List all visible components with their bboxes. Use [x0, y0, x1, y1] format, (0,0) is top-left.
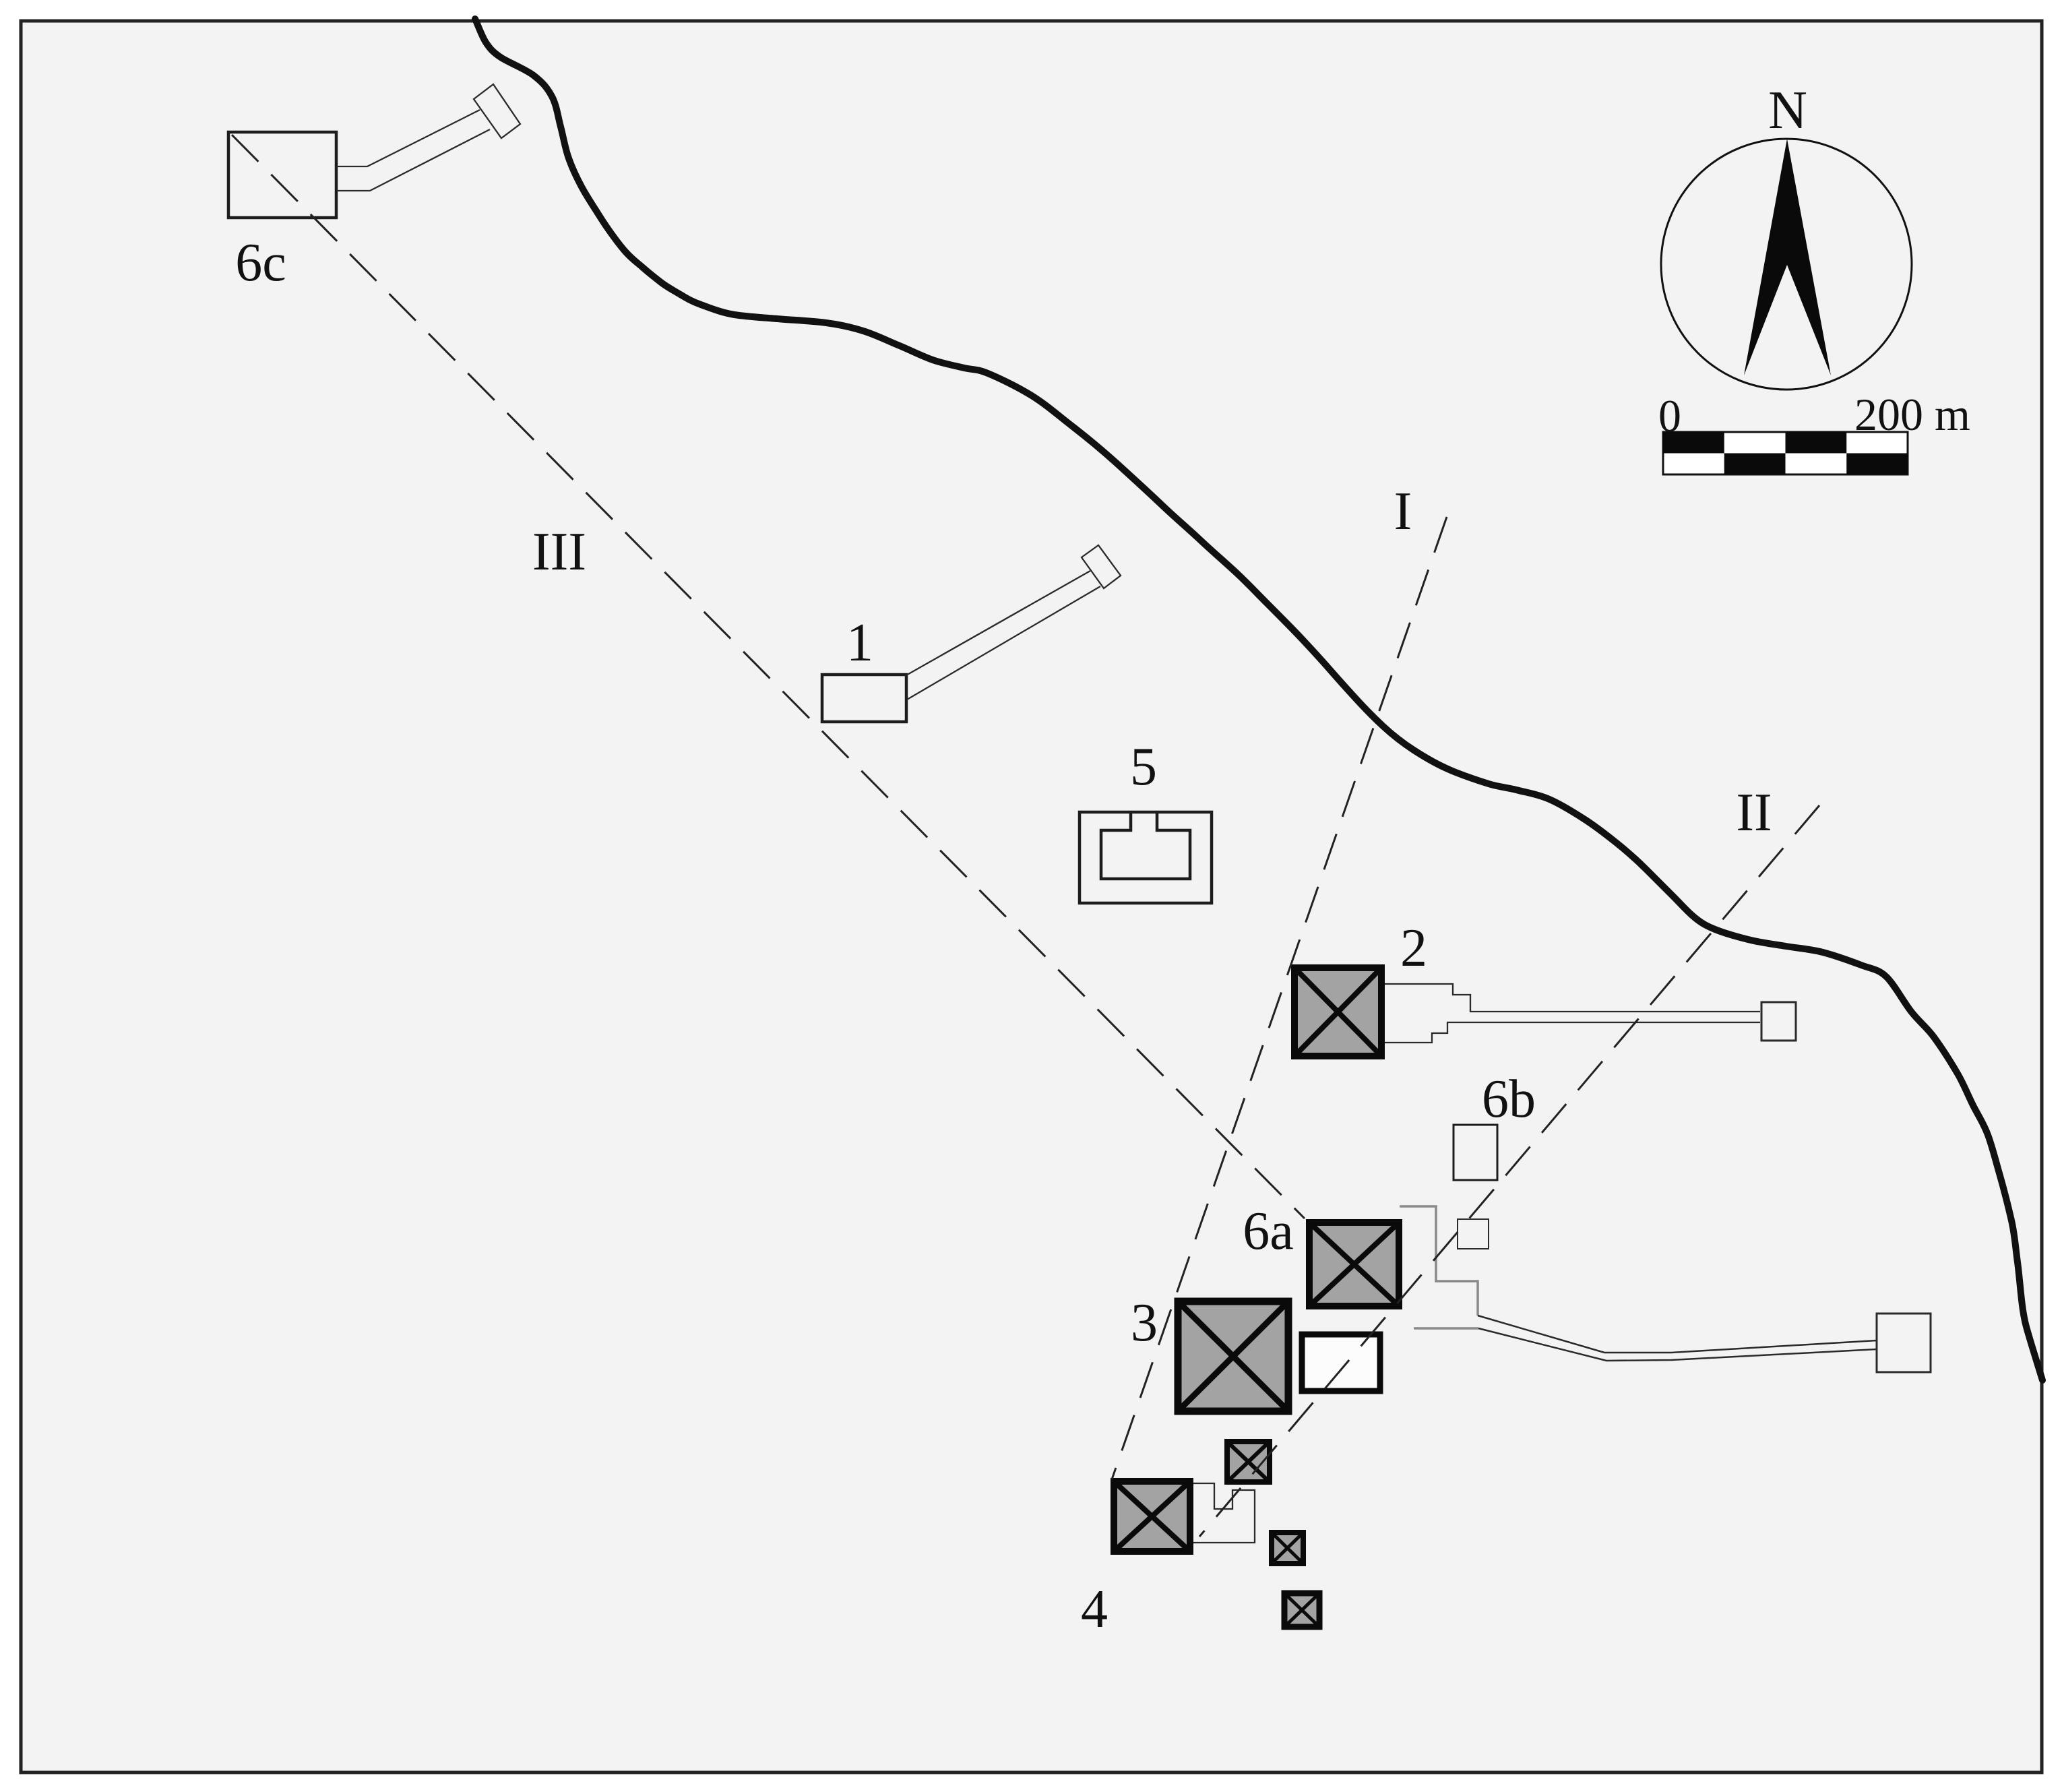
svg-text:2: 2: [1400, 919, 1427, 978]
svg-text:6a: 6a: [1243, 1202, 1294, 1261]
svg-text:0: 0: [1658, 390, 1681, 441]
svg-text:200 m: 200 m: [1854, 389, 1970, 440]
svg-text:5: 5: [1130, 737, 1157, 797]
svg-text:6c: 6c: [235, 233, 286, 292]
svg-text:1: 1: [846, 613, 873, 673]
svg-text:II: II: [1736, 783, 1772, 842]
svg-text:3: 3: [1131, 1293, 1158, 1353]
svg-text:III: III: [532, 522, 586, 582]
svg-text:4: 4: [1081, 1580, 1108, 1639]
svg-text:I: I: [1394, 482, 1412, 541]
svg-text:N: N: [1768, 81, 1807, 140]
svg-text:6b: 6b: [1482, 1070, 1536, 1129]
